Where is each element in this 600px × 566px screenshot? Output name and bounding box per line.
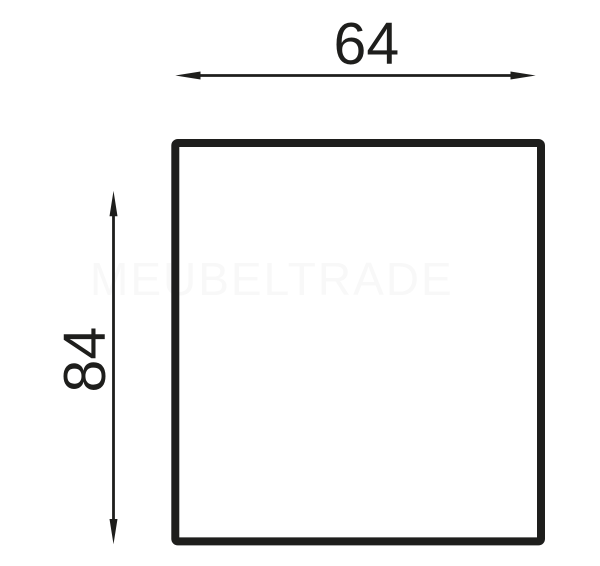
svg-text:64: 64 xyxy=(334,11,400,77)
svg-text:84: 84 xyxy=(52,327,118,393)
svg-text:MEUBELTRADE: MEUBELTRADE xyxy=(90,253,454,305)
